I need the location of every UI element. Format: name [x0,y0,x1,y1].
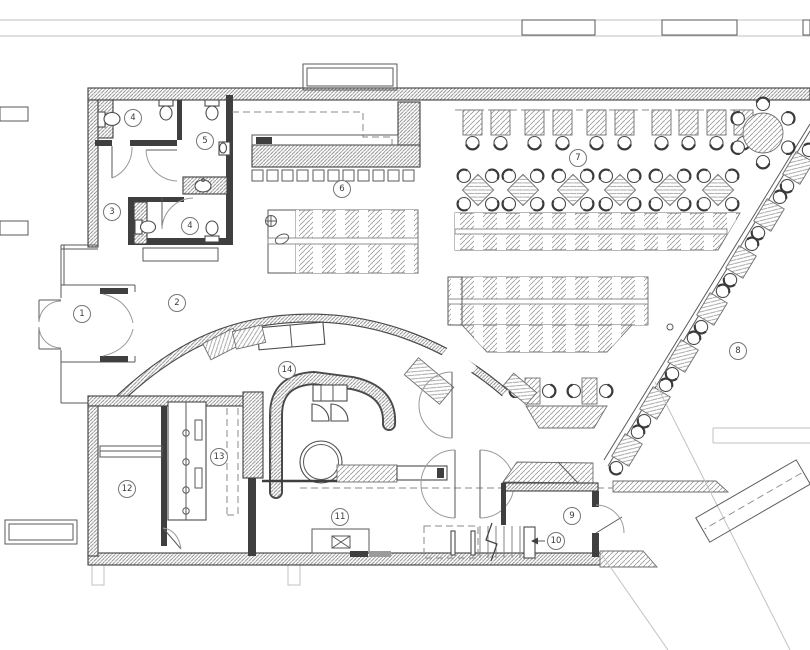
room-label-4-3: 4 [124,109,142,127]
room-label-5-5: 5 [196,132,214,150]
room-label-12-12: 12 [118,480,136,498]
floor-plan-page: 12344567891011121314 [0,0,810,650]
room-label-2-1: 2 [168,294,186,312]
room-label-14-14: 14 [278,361,296,379]
room-label-3-2: 3 [103,203,121,221]
room-label-4-4: 4 [181,217,199,235]
room-label-9-9: 9 [563,507,581,525]
room-label-11-11: 11 [331,508,349,526]
room-label-13-13: 13 [210,448,228,466]
room-label-8-8: 8 [729,342,747,360]
room-label-10-10: 10 [547,532,565,550]
room-label-7-7: 7 [569,149,587,167]
room-label-1-0: 1 [73,305,91,323]
room-number-labels: 12344567891011121314 [0,0,810,650]
room-label-6-6: 6 [333,180,351,198]
